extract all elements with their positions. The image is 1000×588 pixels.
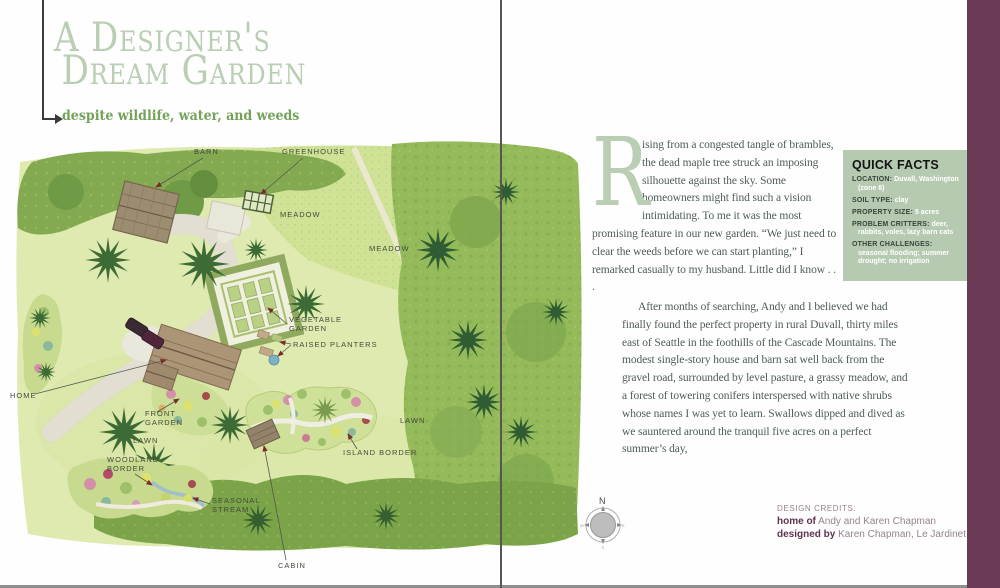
label-cabin: CABIN (278, 561, 306, 570)
label-seasonal-1: SEASONAL (212, 496, 260, 505)
credits-home-of: home of Andy and Karen Chapman (777, 515, 966, 528)
label-barn: BARN (194, 147, 219, 156)
accent-edge-strip (967, 0, 1000, 588)
vegetable-garden (208, 258, 300, 350)
quick-facts-location: LOCATION: Duvall, Washington (zone 6) (852, 176, 959, 193)
label-vegetable-2: GARDEN (289, 324, 327, 333)
label-meadow-2: MEADOW (369, 244, 410, 253)
label-woodland-1: WOODLAND (107, 455, 159, 464)
label-woodland-2: BORDER (107, 464, 145, 473)
quick-facts-title: QUICK FACTS (852, 158, 959, 172)
quick-facts-soil: SOIL TYPE: clay (852, 197, 959, 206)
label-lawn-1: LAWN (133, 436, 158, 445)
label-lawn-2: LAWN (400, 416, 425, 425)
compass-east-label: E (622, 523, 625, 528)
pond (269, 355, 279, 365)
compass-south-label: S (602, 545, 605, 550)
label-greenhouse: GREENHOUSE (282, 147, 345, 156)
label-vegetable-1: VEGETABLE (289, 315, 342, 324)
heading-rule-horizontal (42, 118, 55, 120)
credits-designed-by: designed by Karen Chapman, Le Jardinet (777, 528, 966, 541)
page-gutter-line (500, 0, 502, 588)
paragraph-1: Rising from a congested tangle of brambl… (592, 137, 839, 297)
label-raised-planters: RAISED PLANTERS (293, 340, 378, 349)
title-line2: Dream Garden (62, 55, 307, 88)
quick-facts-critters: PROBLEM CRITTERS: deer, rabbits, voles, … (852, 221, 959, 238)
label-home: HOME (10, 391, 37, 400)
compass-north-label: N (599, 496, 606, 506)
paragraph-2: After months of searching, Andy and I be… (622, 299, 915, 459)
page-title: A Designer's Dream Garden (54, 22, 306, 88)
credits-heading: DESIGN CREDITS: (777, 502, 966, 515)
book-spread: A Designer's Dream Garden despite wildli… (0, 0, 1000, 588)
greenhouse (243, 191, 274, 214)
label-island-border: ISLAND BORDER (343, 448, 417, 457)
quick-facts-box: QUICK FACTS LOCATION: Duvall, Washington… (843, 150, 967, 281)
quick-facts-challenges: OTHER CHALLENGES: seasonal flooding; sum… (852, 241, 959, 267)
label-front-2: GARDEN (145, 418, 183, 427)
drop-cap: R (592, 137, 632, 209)
design-credits: DESIGN CREDITS: home of Andy and Karen C… (777, 502, 966, 541)
page-subtitle: despite wildlife, water, and weeds (62, 108, 299, 124)
label-seasonal-2: STREAM (212, 505, 249, 514)
quick-facts-size: PROPERTY SIZE: 5 acres (852, 209, 959, 218)
label-meadow-1: MEADOW (280, 210, 321, 219)
label-front-1: FRONT (145, 409, 176, 418)
heading-rule-vertical (42, 0, 44, 119)
